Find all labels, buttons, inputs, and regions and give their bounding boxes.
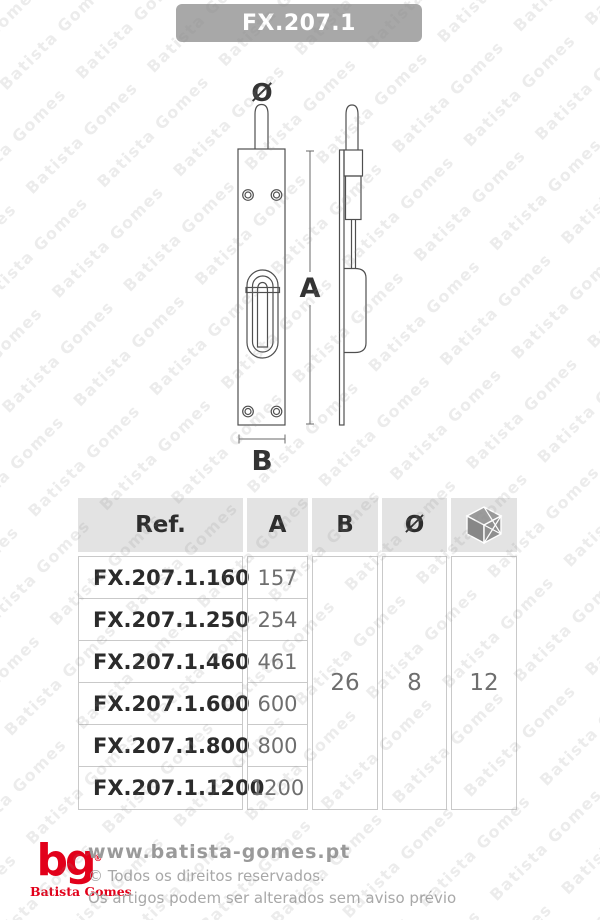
table-row-ref: FX.207.1.1200 xyxy=(79,767,242,809)
header-diameter: Ø xyxy=(382,498,447,552)
side-guide-lower xyxy=(346,176,362,220)
header-b: B xyxy=(312,498,378,552)
column-box-quantity: 12 xyxy=(451,498,517,810)
side-plate xyxy=(340,150,345,425)
website-link[interactable]: www.batista-gomes.pt xyxy=(88,841,456,863)
header-a: A xyxy=(247,498,308,552)
table-row-a: 800 xyxy=(248,725,307,767)
copyright-text: © Todos os direitos reservados. xyxy=(88,867,456,885)
merged-value-diameter: 8 xyxy=(383,557,446,809)
side-view xyxy=(340,105,367,425)
slot-handle xyxy=(246,288,280,293)
table-row-a: 600 xyxy=(248,683,307,725)
technical-drawing: Ø A xyxy=(0,0,600,490)
column-ref: Ref. FX.207.1.160 FX.207.1.250 FX.207.1.… xyxy=(78,498,243,810)
table-row-ref: FX.207.1.460 xyxy=(79,641,242,683)
column-a: A 157 254 461 600 800 1200 xyxy=(247,498,308,810)
merged-value-b: 26 xyxy=(313,557,377,809)
column-diameter: Ø 8 xyxy=(382,498,447,810)
dimension-a: A xyxy=(300,151,321,424)
dim-a-label: A xyxy=(300,273,321,304)
table-row-a: 157 xyxy=(248,557,307,599)
table-row-ref: FX.207.1.600 xyxy=(79,683,242,725)
dim-b-label: B xyxy=(251,444,272,477)
table-row-ref: FX.207.1.160 xyxy=(79,557,242,599)
side-slot-housing xyxy=(344,269,366,353)
logo-bg-mark: bg ® xyxy=(37,840,94,882)
side-guide-upper xyxy=(344,150,363,176)
column-b: B 26 xyxy=(312,498,378,810)
dim-diameter-label: Ø xyxy=(251,78,272,107)
box-quantity-icon xyxy=(465,505,503,545)
header-box-quantity xyxy=(451,498,517,552)
front-pin xyxy=(255,105,268,150)
table-row-ref: FX.207.1.800 xyxy=(79,725,242,767)
notice-text: Os artigos podem ser alterados sem aviso… xyxy=(88,889,456,907)
front-view xyxy=(238,105,285,426)
merged-value-box: 12 xyxy=(452,557,516,809)
catalog-page: Batista Gomes Batista Gomes Batista Gome… xyxy=(0,0,600,920)
table-row-a: 254 xyxy=(248,599,307,641)
table-row-a: 461 xyxy=(248,641,307,683)
dimensions-table: Ref. FX.207.1.160 FX.207.1.250 FX.207.1.… xyxy=(78,498,517,810)
table-row-ref: FX.207.1.250 xyxy=(79,599,242,641)
table-row-a: 1200 xyxy=(248,767,307,809)
dimension-b: B xyxy=(239,435,285,478)
side-pin xyxy=(346,105,358,150)
header-ref: Ref. xyxy=(78,498,243,552)
